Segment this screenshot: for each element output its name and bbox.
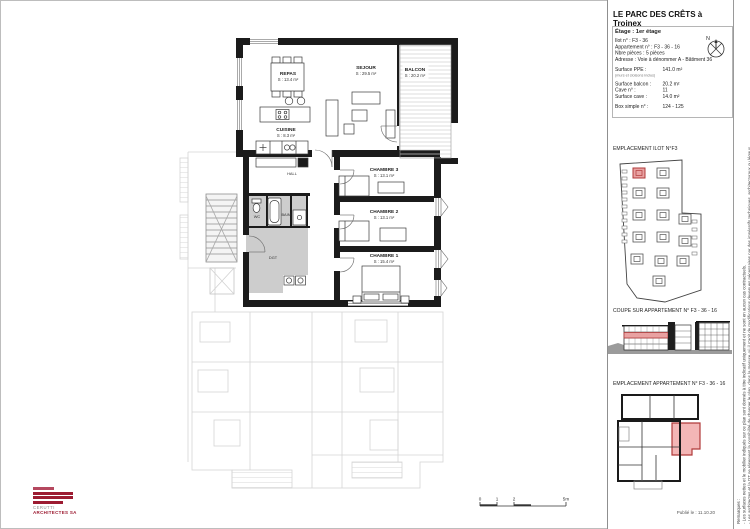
scale-bar: 0 1 2 5m <box>476 495 572 513</box>
cellar-surface-label: Surface cave : <box>615 94 663 100</box>
svg-text:S : 29.5 m²: S : 29.5 m² <box>356 71 377 76</box>
svg-text:5m: 5m <box>563 497 570 502</box>
svg-text:S : 13.4 m²: S : 13.4 m² <box>278 77 299 82</box>
key-plan <box>616 391 724 495</box>
site-highlighted-building <box>633 168 645 178</box>
plan-sheet: REPAS S : 13.4 m² SEJOUR S : 29.5 m² CUI… <box>0 0 750 529</box>
bed-3 <box>339 176 369 196</box>
label-bain: BAIN <box>281 212 290 217</box>
architect-logo: CERUTTI ARCHITECTES SA <box>33 487 123 525</box>
key-plan-highlighted-unit <box>672 423 700 455</box>
wc-fixture <box>252 199 261 203</box>
sofa-2 <box>326 100 338 136</box>
svg-text:S : 20.2 m²: S : 20.2 m² <box>405 73 426 78</box>
tv-bench <box>386 110 395 138</box>
north-arrow-icon: N <box>703 32 727 60</box>
svg-text:N: N <box>706 36 710 42</box>
svg-text:S : 8.3 m²: S : 8.3 m² <box>277 133 296 138</box>
desk-2 <box>380 228 406 241</box>
section-title-ilot: EMPLACEMENT ILOT N°F3 <box>613 146 735 152</box>
svg-text:2: 2 <box>513 497 516 502</box>
publish-date: Publié le : 11.10.20 <box>608 510 726 515</box>
bed-2 <box>339 221 369 241</box>
address-value: Voie à dénommer A - Bâtiment 36 <box>638 57 712 63</box>
box-value: 124 - 125 <box>663 104 684 110</box>
logo-bar <box>33 487 54 490</box>
section-highlighted-floor <box>624 333 668 339</box>
remarks-strip: Remarques : - Les surfaces nettes et le … <box>733 0 750 529</box>
balcony <box>400 45 451 158</box>
building-section <box>608 316 734 361</box>
title-block-sidebar: LE PARC DES CRÊTS à Troinex Étage : 1er … <box>607 0 734 529</box>
label-hall: HALL <box>287 171 298 176</box>
armchair <box>344 124 354 134</box>
cellar-surface-value: 14.0 m² <box>663 94 680 100</box>
section-title-coupe: COUPE SUR APPARTEMENT N° F3 - 36 - 16 <box>613 308 735 314</box>
label-dgt: DGT <box>269 255 278 260</box>
logo-bar <box>33 496 73 499</box>
label-wc: WC <box>254 214 261 219</box>
svg-text:S : 13.1 m²: S : 13.1 m² <box>374 215 395 220</box>
desk-3 <box>378 182 404 193</box>
logo-bar <box>33 501 63 504</box>
box-label: Box simple n° : <box>615 104 663 110</box>
stairwell <box>206 194 237 294</box>
svg-text:S : 15.4 m²: S : 15.4 m² <box>374 259 395 264</box>
logo-bar <box>33 492 73 495</box>
ppe-value: 141.0 m² <box>663 67 683 73</box>
logo-firm-type: ARCHITECTES SA <box>33 510 123 515</box>
main-floor-plan: REPAS S : 13.4 m² SEJOUR S : 29.5 m² CUI… <box>0 0 607 529</box>
site-plan <box>613 156 727 306</box>
coffee-table <box>352 110 367 121</box>
sofa <box>352 92 380 104</box>
address-label: Adresse : <box>615 57 636 63</box>
svg-text:1: 1 <box>496 497 499 502</box>
svg-text:S : 13.1 m²: S : 13.1 m² <box>374 173 395 178</box>
section-title-apartment-location: EMPLACEMENT APPARTEMENT N° F3 - 36 - 16 <box>613 381 735 387</box>
svg-text:0: 0 <box>479 497 482 502</box>
